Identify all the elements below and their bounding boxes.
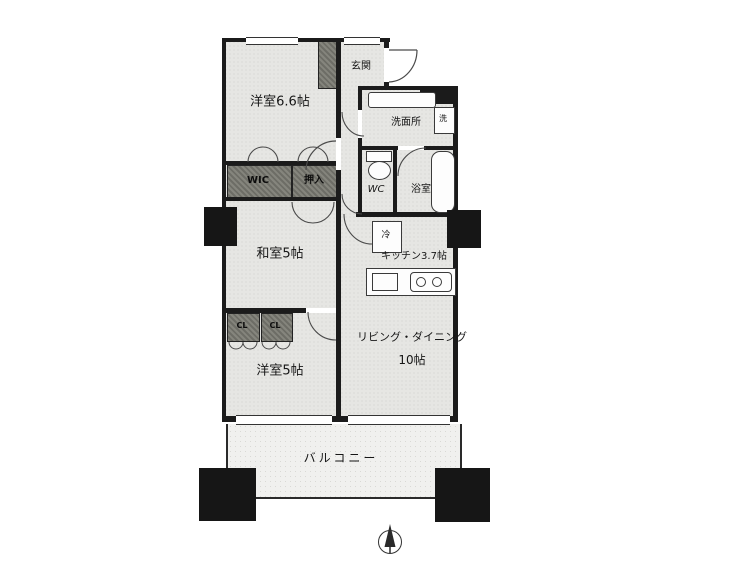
window-west5-balcony: [236, 415, 332, 425]
pillar-bottom-right: [435, 468, 490, 522]
kitchen-sink: [372, 273, 398, 291]
stove-burner-right: [432, 277, 442, 287]
pillar-right-mid: [447, 210, 481, 248]
pillar-left-mid: [204, 207, 237, 246]
north-arrow-icon: [368, 516, 412, 560]
wall-hall-divider: [358, 88, 362, 216]
wall-mid: [336, 38, 341, 421]
wall-closetrow-bottom: [222, 197, 338, 201]
door-gap-west66: [336, 138, 341, 170]
label-japanese-5: 和室5帖: [256, 248, 303, 261]
hallway: [340, 88, 360, 215]
wall-wc-bath-divider: [393, 148, 397, 216]
label-wic: WIC: [247, 176, 269, 186]
door-gap-bath: [398, 146, 424, 150]
window-west66-top: [246, 37, 298, 45]
label-wc: WC: [368, 185, 385, 195]
window-genkan-top: [344, 37, 380, 45]
label-washroom: 洗面所: [391, 118, 421, 128]
floor-plan: 洋室6.6帖 玄関 洗面所 洗 WIC 押入 WC 浴室 冷 和室5帖 キッチン…: [0, 0, 730, 561]
door-gap-genkan: [384, 48, 389, 82]
label-kitchen: キッチン3.7帖: [381, 252, 447, 262]
vanity-counter: [368, 92, 436, 108]
label-western-5: 洋室5帖: [256, 365, 303, 378]
label-closet-left: CL: [237, 322, 248, 330]
stove-burner-left: [416, 277, 426, 287]
label-bath: 浴室: [411, 185, 431, 195]
label-fridge: 冷: [381, 232, 390, 241]
label-western-6_6: 洋室6.6帖: [250, 96, 310, 109]
label-washer: 洗: [439, 115, 447, 123]
label-closet-right: CL: [270, 322, 281, 330]
bathtub: [431, 151, 455, 213]
shoe-cabinet: [318, 41, 338, 89]
window-living-balcony: [348, 415, 450, 425]
door-gap-washroom: [358, 110, 362, 138]
label-living-size: 10帖: [398, 354, 425, 366]
pillar-bottom-left: [199, 468, 256, 521]
label-genkan: 玄関: [351, 62, 371, 72]
label-balcony: バルコニー: [304, 452, 379, 464]
label-living: リビング・ダイニング: [357, 332, 467, 343]
door-gap-west5: [306, 308, 336, 313]
wall-west66-bottom: [222, 161, 338, 165]
toilet-bowl: [368, 161, 391, 180]
door-arc-genkan: [389, 50, 417, 82]
label-oshiire: 押入: [304, 176, 324, 186]
